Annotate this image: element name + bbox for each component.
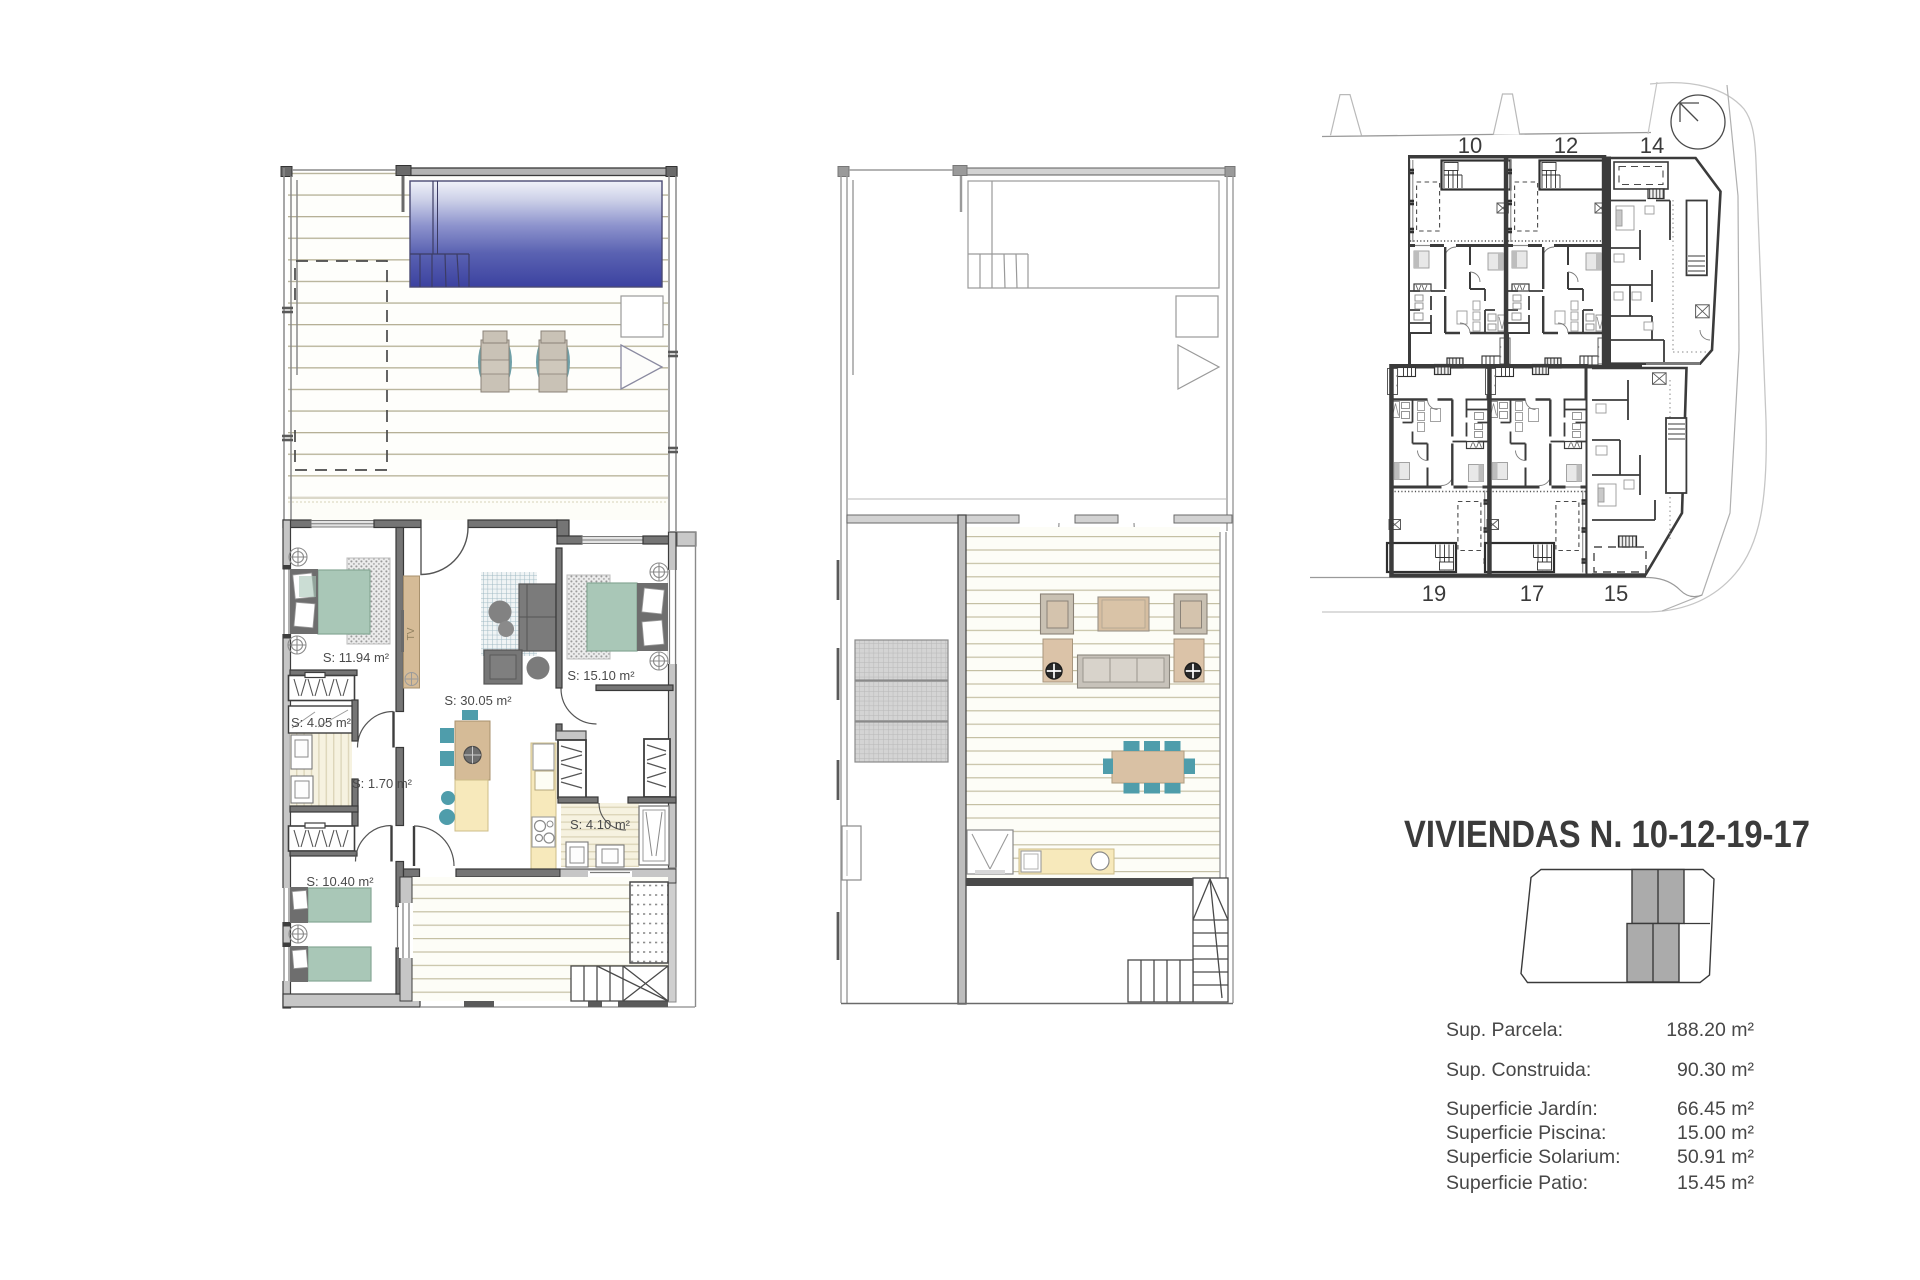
svg-text:10: 10 [1458,133,1482,158]
svg-text:17: 17 [1520,581,1544,606]
svg-text:188.20 m²: 188.20 m² [1666,1019,1754,1041]
svg-text:TV: TV [406,627,417,640]
svg-text:66.45 m²: 66.45 m² [1677,1098,1754,1120]
svg-text:Superficie Patio:: Superficie Patio: [1446,1172,1588,1194]
svg-text:19: 19 [1422,581,1446,606]
svg-text:Sup. Parcela:: Sup. Parcela: [1446,1019,1563,1041]
svg-text:S: 30.05 m²: S: 30.05 m² [444,693,512,708]
svg-text:S: 4.05 m²: S: 4.05 m² [291,715,352,730]
svg-text:VIVIENDAS N. 10-12-19-17: VIVIENDAS N. 10-12-19-17 [1404,814,1810,856]
svg-text:S: 11.94 m²: S: 11.94 m² [323,650,390,665]
svg-text:S: 4.10 m²: S: 4.10 m² [570,817,631,832]
svg-text:15.45 m²: 15.45 m² [1677,1172,1754,1194]
svg-text:Superficie Piscina:: Superficie Piscina: [1446,1122,1606,1144]
svg-text:12: 12 [1554,133,1578,158]
svg-text:Superficie Solarium:: Superficie Solarium: [1446,1146,1621,1168]
svg-text:15.00 m²: 15.00 m² [1677,1122,1754,1144]
svg-text:S: 15.10 m²: S: 15.10 m² [567,668,635,683]
svg-text:S: 1.70 m²: S: 1.70 m² [352,776,413,791]
svg-text:Sup. Construida:: Sup. Construida: [1446,1059,1591,1081]
svg-text:Superficie Jardín:: Superficie Jardín: [1446,1098,1598,1120]
svg-text:S: 10.40 m²: S: 10.40 m² [306,874,374,889]
svg-text:50.91 m²: 50.91 m² [1677,1146,1754,1168]
svg-text:15: 15 [1604,581,1628,606]
svg-text:14: 14 [1640,133,1664,158]
svg-text:90.30 m²: 90.30 m² [1677,1059,1754,1081]
